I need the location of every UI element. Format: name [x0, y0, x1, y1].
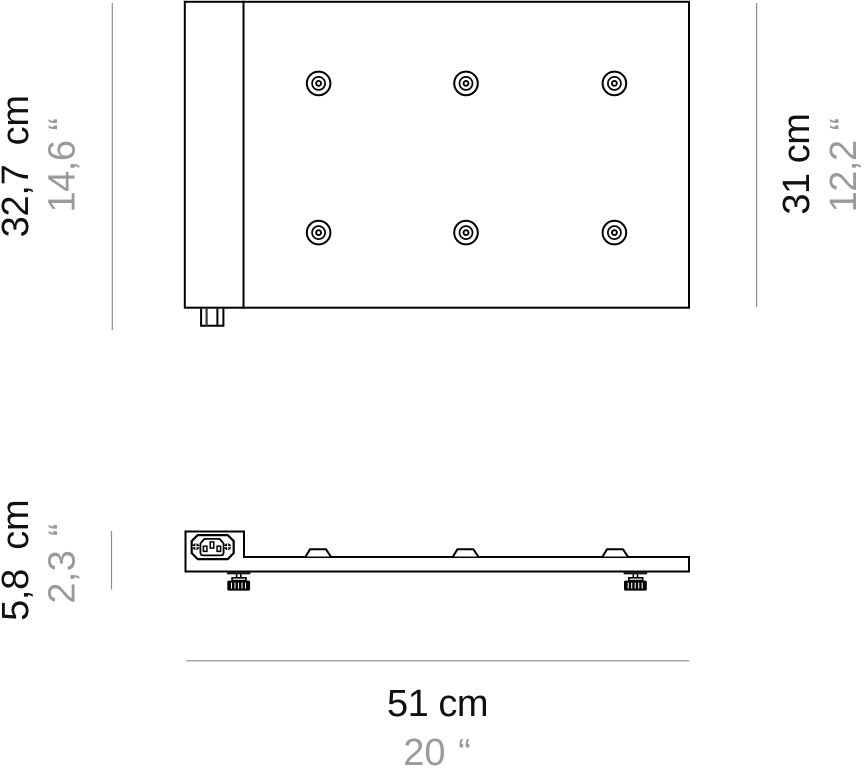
svg-text:20 “: 20 “: [403, 732, 470, 768]
svg-text:5,8 cm: 5,8 cm: [0, 500, 37, 621]
svg-text:31 cm: 31 cm: [776, 114, 818, 215]
svg-text:14,6 “: 14,6 “: [42, 118, 84, 212]
svg-text:51 cm: 51 cm: [387, 683, 488, 725]
svg-text:12,2 “: 12,2 “: [823, 118, 865, 212]
svg-text:2,3 “: 2,3 “: [42, 523, 84, 604]
svg-text:32,7 cm: 32,7 cm: [0, 95, 37, 237]
